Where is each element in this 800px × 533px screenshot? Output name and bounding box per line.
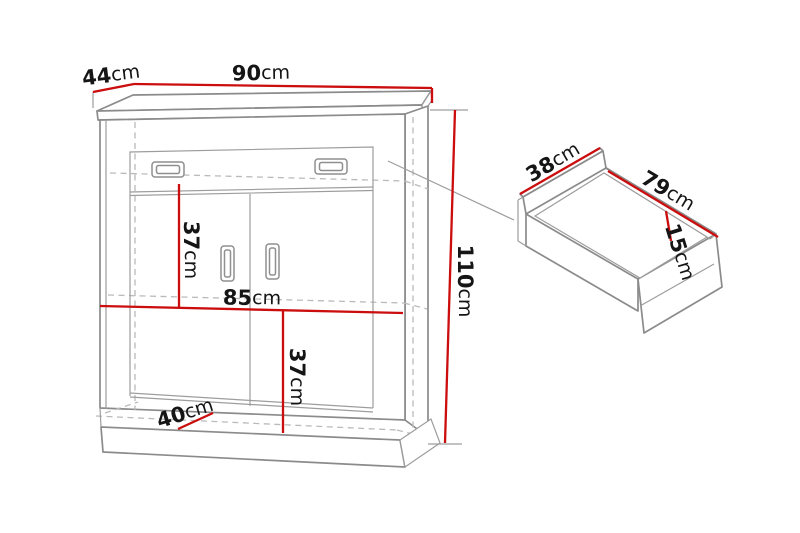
dim-label-inner-width: 85cm [223,285,282,310]
diagram-svg: 44cm 90cm 110cm 37cm 85cm 37cm 40cm [0,0,800,533]
door-handle-right [266,244,279,279]
plinth-front-face [101,427,405,467]
plinth-right-cap [400,419,440,467]
door-handle-left [221,246,234,281]
dimension-diagram-page: 44cm 90cm 110cm 37cm 85cm 37cm 40cm [0,0,800,533]
top-drawer-handle-left [152,162,184,177]
dim-label-height: 110cm [453,245,477,318]
cabinet-right-side-panel [405,106,428,437]
drawer-diagram: 38cm 79cm 15cm [518,137,722,333]
dim-label-lower-section: 37cm [285,348,309,406]
dim-label-upper-section: 37cm [179,221,203,279]
plinth-left-connector [100,408,101,427]
dim-label-width: 90cm [232,60,291,85]
top-drawer-handle-right [315,159,347,174]
cabinet-diagram: 44cm 90cm 110cm 37cm 85cm 37cm 40cm [81,60,514,467]
cabinet-front-face [100,114,405,420]
dim-label-depth: 44cm [81,60,142,91]
